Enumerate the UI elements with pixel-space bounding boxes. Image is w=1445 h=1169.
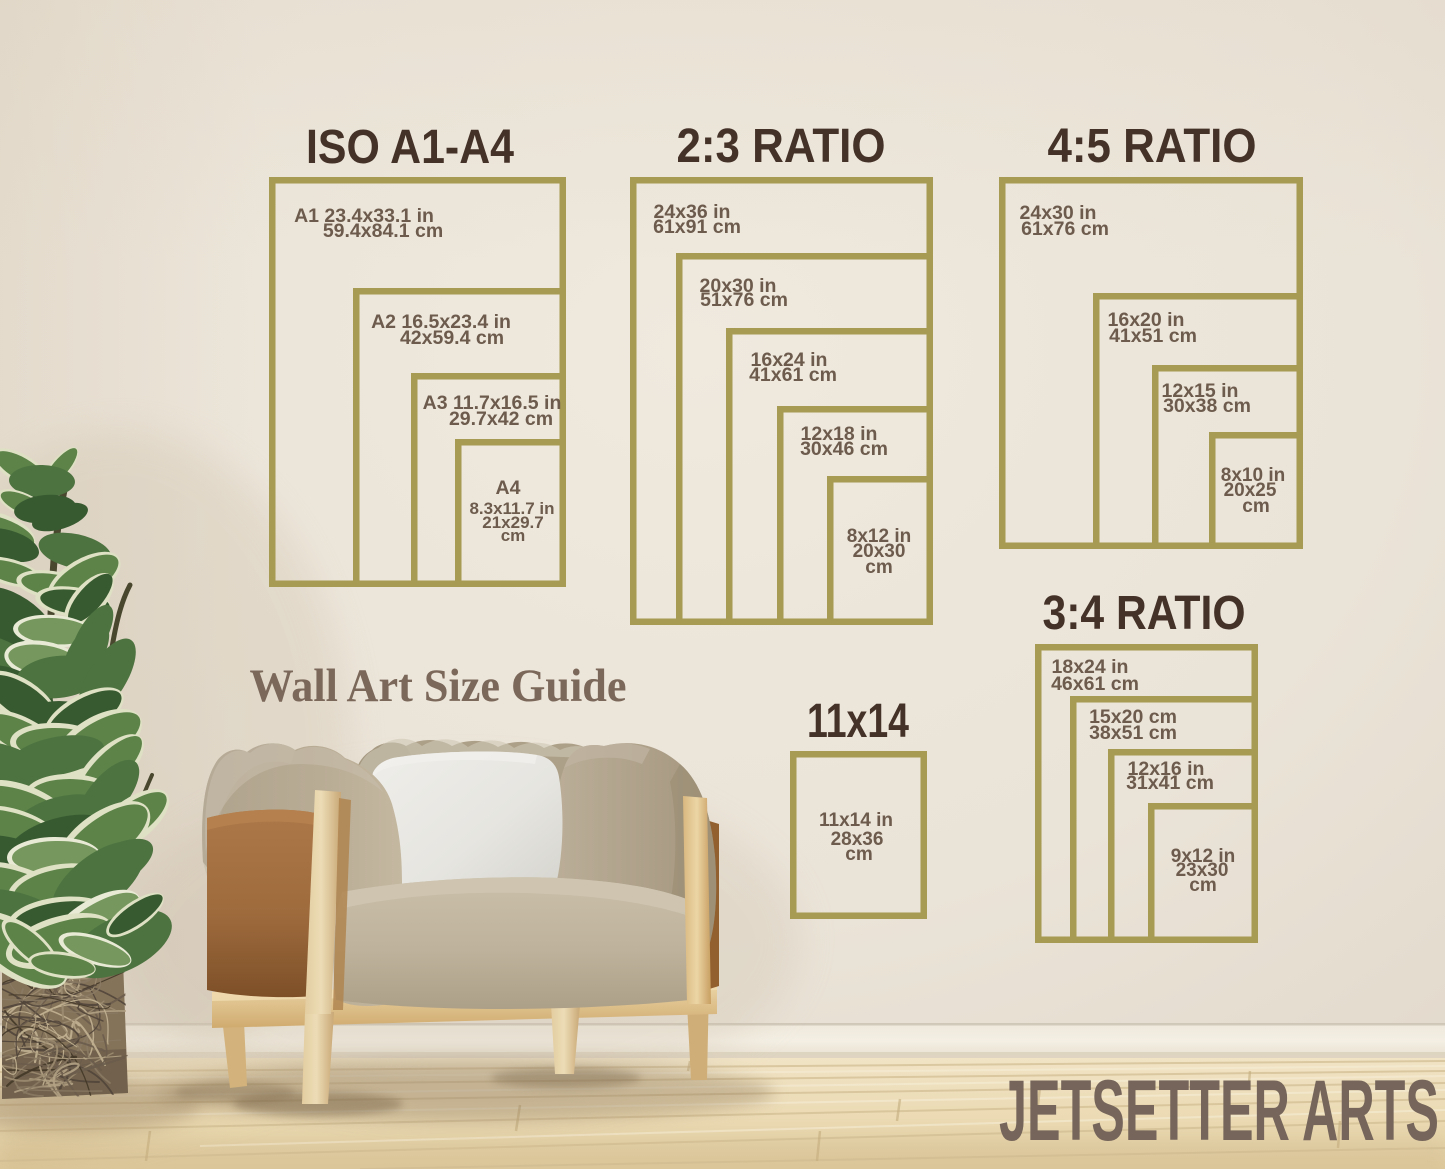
svg-text:4:5 RATIO: 4:5 RATIO [1048,120,1257,173]
svg-text:ISO A1-A4: ISO A1-A4 [306,121,514,174]
svg-text:29.7x42 cm: 29.7x42 cm [449,408,553,430]
svg-text:61x76 cm: 61x76 cm [1021,218,1109,240]
svg-text:cm: cm [1242,496,1269,517]
svg-text:11x14: 11x14 [807,695,909,748]
svg-text:42x59.4 cm: 42x59.4 cm [400,327,504,349]
svg-text:38x51 cm: 38x51 cm [1089,722,1177,744]
svg-text:3:4 RATIO: 3:4 RATIO [1043,587,1246,640]
svg-text:cm: cm [501,526,526,545]
svg-text:30x46 cm: 30x46 cm [800,438,888,460]
svg-text:Wall Art Size Guide: Wall Art Size Guide [250,660,627,712]
svg-text:cm: cm [865,557,892,578]
svg-text:61x91 cm: 61x91 cm [653,216,741,238]
svg-text:11x14 in: 11x14 in [819,810,893,831]
svg-text:51x76 cm: 51x76 cm [700,289,788,311]
svg-text:A4: A4 [496,477,521,499]
svg-text:cm: cm [845,844,872,865]
svg-text:2:3 RATIO: 2:3 RATIO [677,120,886,173]
svg-text:JETSETTER ARTS: JETSETTER ARTS [999,1063,1439,1159]
svg-text:41x51 cm: 41x51 cm [1109,325,1197,347]
svg-text:cm: cm [1189,875,1216,896]
svg-text:31x41 cm: 31x41 cm [1126,772,1214,794]
svg-text:46x61 cm: 46x61 cm [1051,673,1139,695]
svg-text:59.4x84.1 cm: 59.4x84.1 cm [323,220,443,242]
svg-text:30x38 cm: 30x38 cm [1163,395,1251,417]
svg-text:41x61 cm: 41x61 cm [749,364,837,386]
